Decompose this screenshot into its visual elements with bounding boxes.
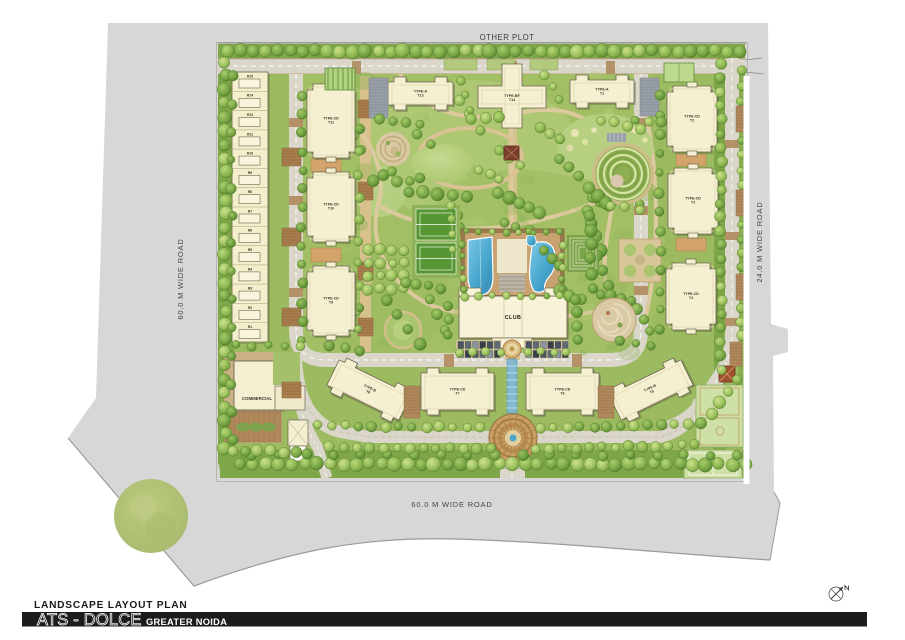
svg-text:R4: R4 [248, 267, 252, 271]
svg-text:T9: T9 [329, 301, 333, 305]
svg-text:R12: R12 [247, 113, 253, 117]
svg-text:R11: R11 [247, 132, 253, 136]
svg-text:R14: R14 [247, 94, 253, 98]
svg-text:R5: R5 [248, 248, 252, 252]
svg-text:LANDSCAPE LAYOUT PLAN: LANDSCAPE LAYOUT PLAN [34, 600, 187, 611]
svg-text:T11: T11 [328, 121, 334, 125]
svg-text:R3: R3 [248, 287, 252, 291]
svg-text:R15: R15 [247, 74, 253, 78]
svg-text:T13: T13 [417, 94, 423, 98]
svg-text:R10: R10 [247, 152, 253, 156]
svg-text:T10: T10 [328, 207, 334, 211]
svg-text:60.0 M WIDE ROAD: 60.0 M WIDE ROAD [411, 500, 492, 509]
svg-text:T7: T7 [455, 392, 459, 396]
svg-text:OTHER PLOT: OTHER PLOT [480, 33, 535, 42]
svg-text:ATS - DOLCE: ATS - DOLCE [37, 611, 142, 629]
svg-text:CLUB: CLUB [505, 315, 522, 321]
svg-text:T4: T4 [689, 296, 693, 300]
svg-text:T6: T6 [560, 392, 564, 396]
svg-text:T14: T14 [509, 98, 515, 102]
svg-text:R8: R8 [248, 190, 252, 194]
svg-text:R6: R6 [248, 229, 252, 233]
svg-text:R2: R2 [248, 306, 252, 310]
svg-text:GREATER NOIDA: GREATER NOIDA [146, 617, 227, 627]
svg-text:60.0 M WIDE ROAD: 60.0 M WIDE ROAD [176, 238, 185, 319]
svg-text:R9: R9 [248, 171, 252, 175]
svg-text:R7: R7 [248, 209, 252, 213]
svg-text:R1: R1 [248, 325, 252, 329]
svg-text:COMMERCIAL: COMMERCIAL [242, 396, 273, 401]
svg-text:24.0 M WIDE ROAD: 24.0 M WIDE ROAD [755, 201, 764, 282]
svg-text:T1: T1 [600, 92, 604, 96]
svg-text:T2: T2 [690, 119, 694, 123]
svg-text:T3: T3 [691, 201, 695, 205]
